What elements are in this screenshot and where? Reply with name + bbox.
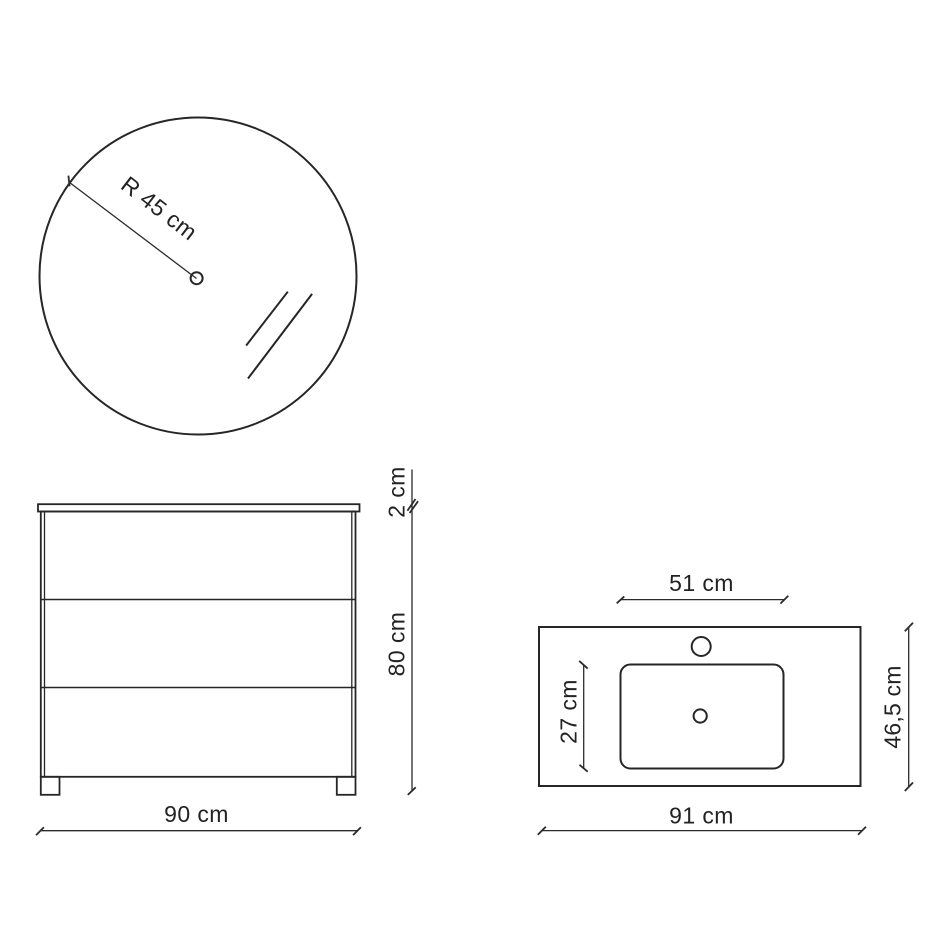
svg-text:2 cm: 2 cm bbox=[384, 466, 410, 517]
svg-text:51 cm: 51 cm bbox=[669, 570, 734, 596]
svg-text:46,5 cm: 46,5 cm bbox=[880, 665, 906, 748]
svg-text:90 cm: 90 cm bbox=[164, 801, 229, 827]
svg-text:80 cm: 80 cm bbox=[384, 612, 410, 677]
svg-text:27 cm: 27 cm bbox=[556, 679, 582, 744]
svg-text:91 cm: 91 cm bbox=[669, 803, 734, 829]
